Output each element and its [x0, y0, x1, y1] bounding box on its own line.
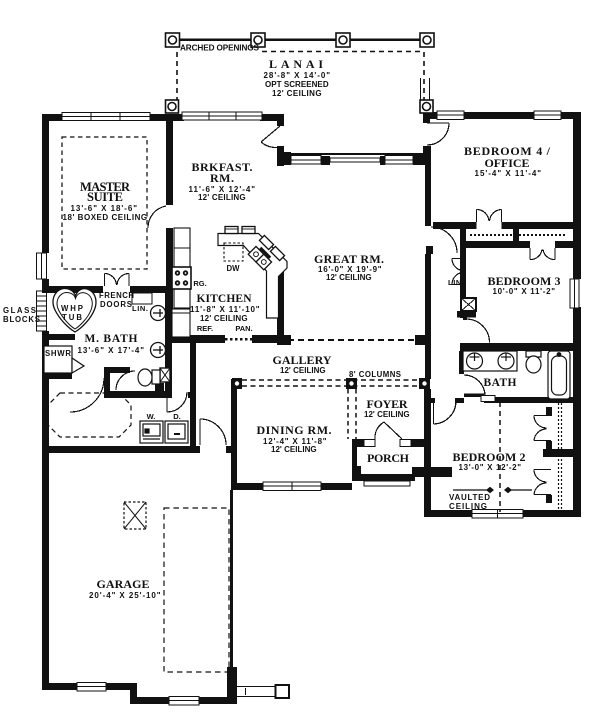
svg-text:12' CEILING: 12' CEILING — [271, 445, 317, 454]
svg-text:GLASS: GLASS — [3, 306, 36, 315]
svg-text:M. BATH: M. BATH — [85, 333, 140, 345]
svg-text:SHWR: SHWR — [45, 349, 71, 358]
svg-text:11'-8" X 11'-10": 11'-8" X 11'-10" — [190, 305, 260, 314]
svg-text:GALLERY: GALLERY — [273, 353, 334, 367]
svg-text:RG.: RG. — [193, 279, 206, 288]
svg-text:FRENCH: FRENCH — [99, 291, 134, 300]
svg-text:BLOCKS: BLOCKS — [3, 315, 40, 324]
svg-text:12' CEILING: 12' CEILING — [280, 366, 326, 375]
svg-text:GARAGE: GARAGE — [97, 577, 152, 591]
svg-text:12' CEILING: 12' CEILING — [272, 89, 322, 98]
svg-text:LIN.: LIN. — [132, 304, 148, 313]
svg-text:12' CEILING: 12' CEILING — [326, 273, 372, 282]
svg-text:FOYER: FOYER — [367, 397, 410, 411]
svg-text:12' CEILING: 12' CEILING — [198, 193, 246, 202]
svg-text:DINING RM.: DINING RM. — [257, 423, 334, 437]
svg-text:8' COLUMNS: 8' COLUMNS — [349, 370, 401, 379]
svg-text:TUB: TUB — [62, 313, 82, 322]
svg-text:W.: W. — [147, 412, 156, 421]
svg-text:ARCHED OPENINGS: ARCHED OPENINGS — [180, 44, 260, 53]
svg-text:OFFICE: OFFICE — [485, 156, 532, 170]
svg-text:18' BOXED CEILING: 18' BOXED CEILING — [63, 213, 148, 222]
svg-text:13'-6" X 18'-6": 13'-6" X 18'-6" — [71, 204, 138, 213]
svg-text:12' CEILING: 12' CEILING — [200, 314, 248, 323]
svg-text:VAULTED: VAULTED — [449, 493, 490, 502]
svg-text:KITCHEN: KITCHEN — [197, 293, 254, 305]
svg-text:PAN.: PAN. — [235, 324, 252, 333]
svg-text:BEDROOM 3: BEDROOM 3 — [488, 274, 563, 288]
svg-text:15'-4" X 11'-4": 15'-4" X 11'-4" — [475, 169, 542, 178]
svg-text:13'-0" X 12'-2": 13'-0" X 12'-2" — [459, 463, 522, 472]
svg-text:20'-4" X 25'-10": 20'-4" X 25'-10" — [89, 591, 161, 600]
svg-text:PORCH: PORCH — [367, 451, 411, 465]
svg-text:CEILING: CEILING — [449, 502, 487, 511]
svg-text:OPT SCREENED: OPT SCREENED — [265, 80, 329, 89]
svg-text:BEDROOM 2: BEDROOM 2 — [453, 450, 528, 464]
svg-text:13'-6" X 17'-4": 13'-6" X 17'-4" — [78, 346, 145, 355]
svg-text:RM.: RM. — [210, 171, 236, 185]
svg-text:DOORS: DOORS — [100, 300, 132, 309]
svg-text:SUITE: SUITE — [87, 190, 125, 204]
svg-text:28'-8" X 14'-0": 28'-8" X 14'-0" — [264, 71, 331, 80]
svg-text:WHP: WHP — [61, 304, 83, 313]
svg-text:BATH: BATH — [484, 377, 519, 389]
svg-text:10'-0" X 11'-2": 10'-0" X 11'-2" — [493, 287, 556, 296]
svg-text:12' CEILING: 12' CEILING — [364, 410, 410, 419]
svg-text:REF.: REF. — [197, 324, 213, 333]
svg-text:D.: D. — [173, 412, 181, 421]
svg-text:GREAT RM.: GREAT RM. — [314, 252, 386, 266]
svg-text:DW: DW — [227, 264, 241, 273]
svg-text:LIN.: LIN. — [448, 278, 464, 287]
